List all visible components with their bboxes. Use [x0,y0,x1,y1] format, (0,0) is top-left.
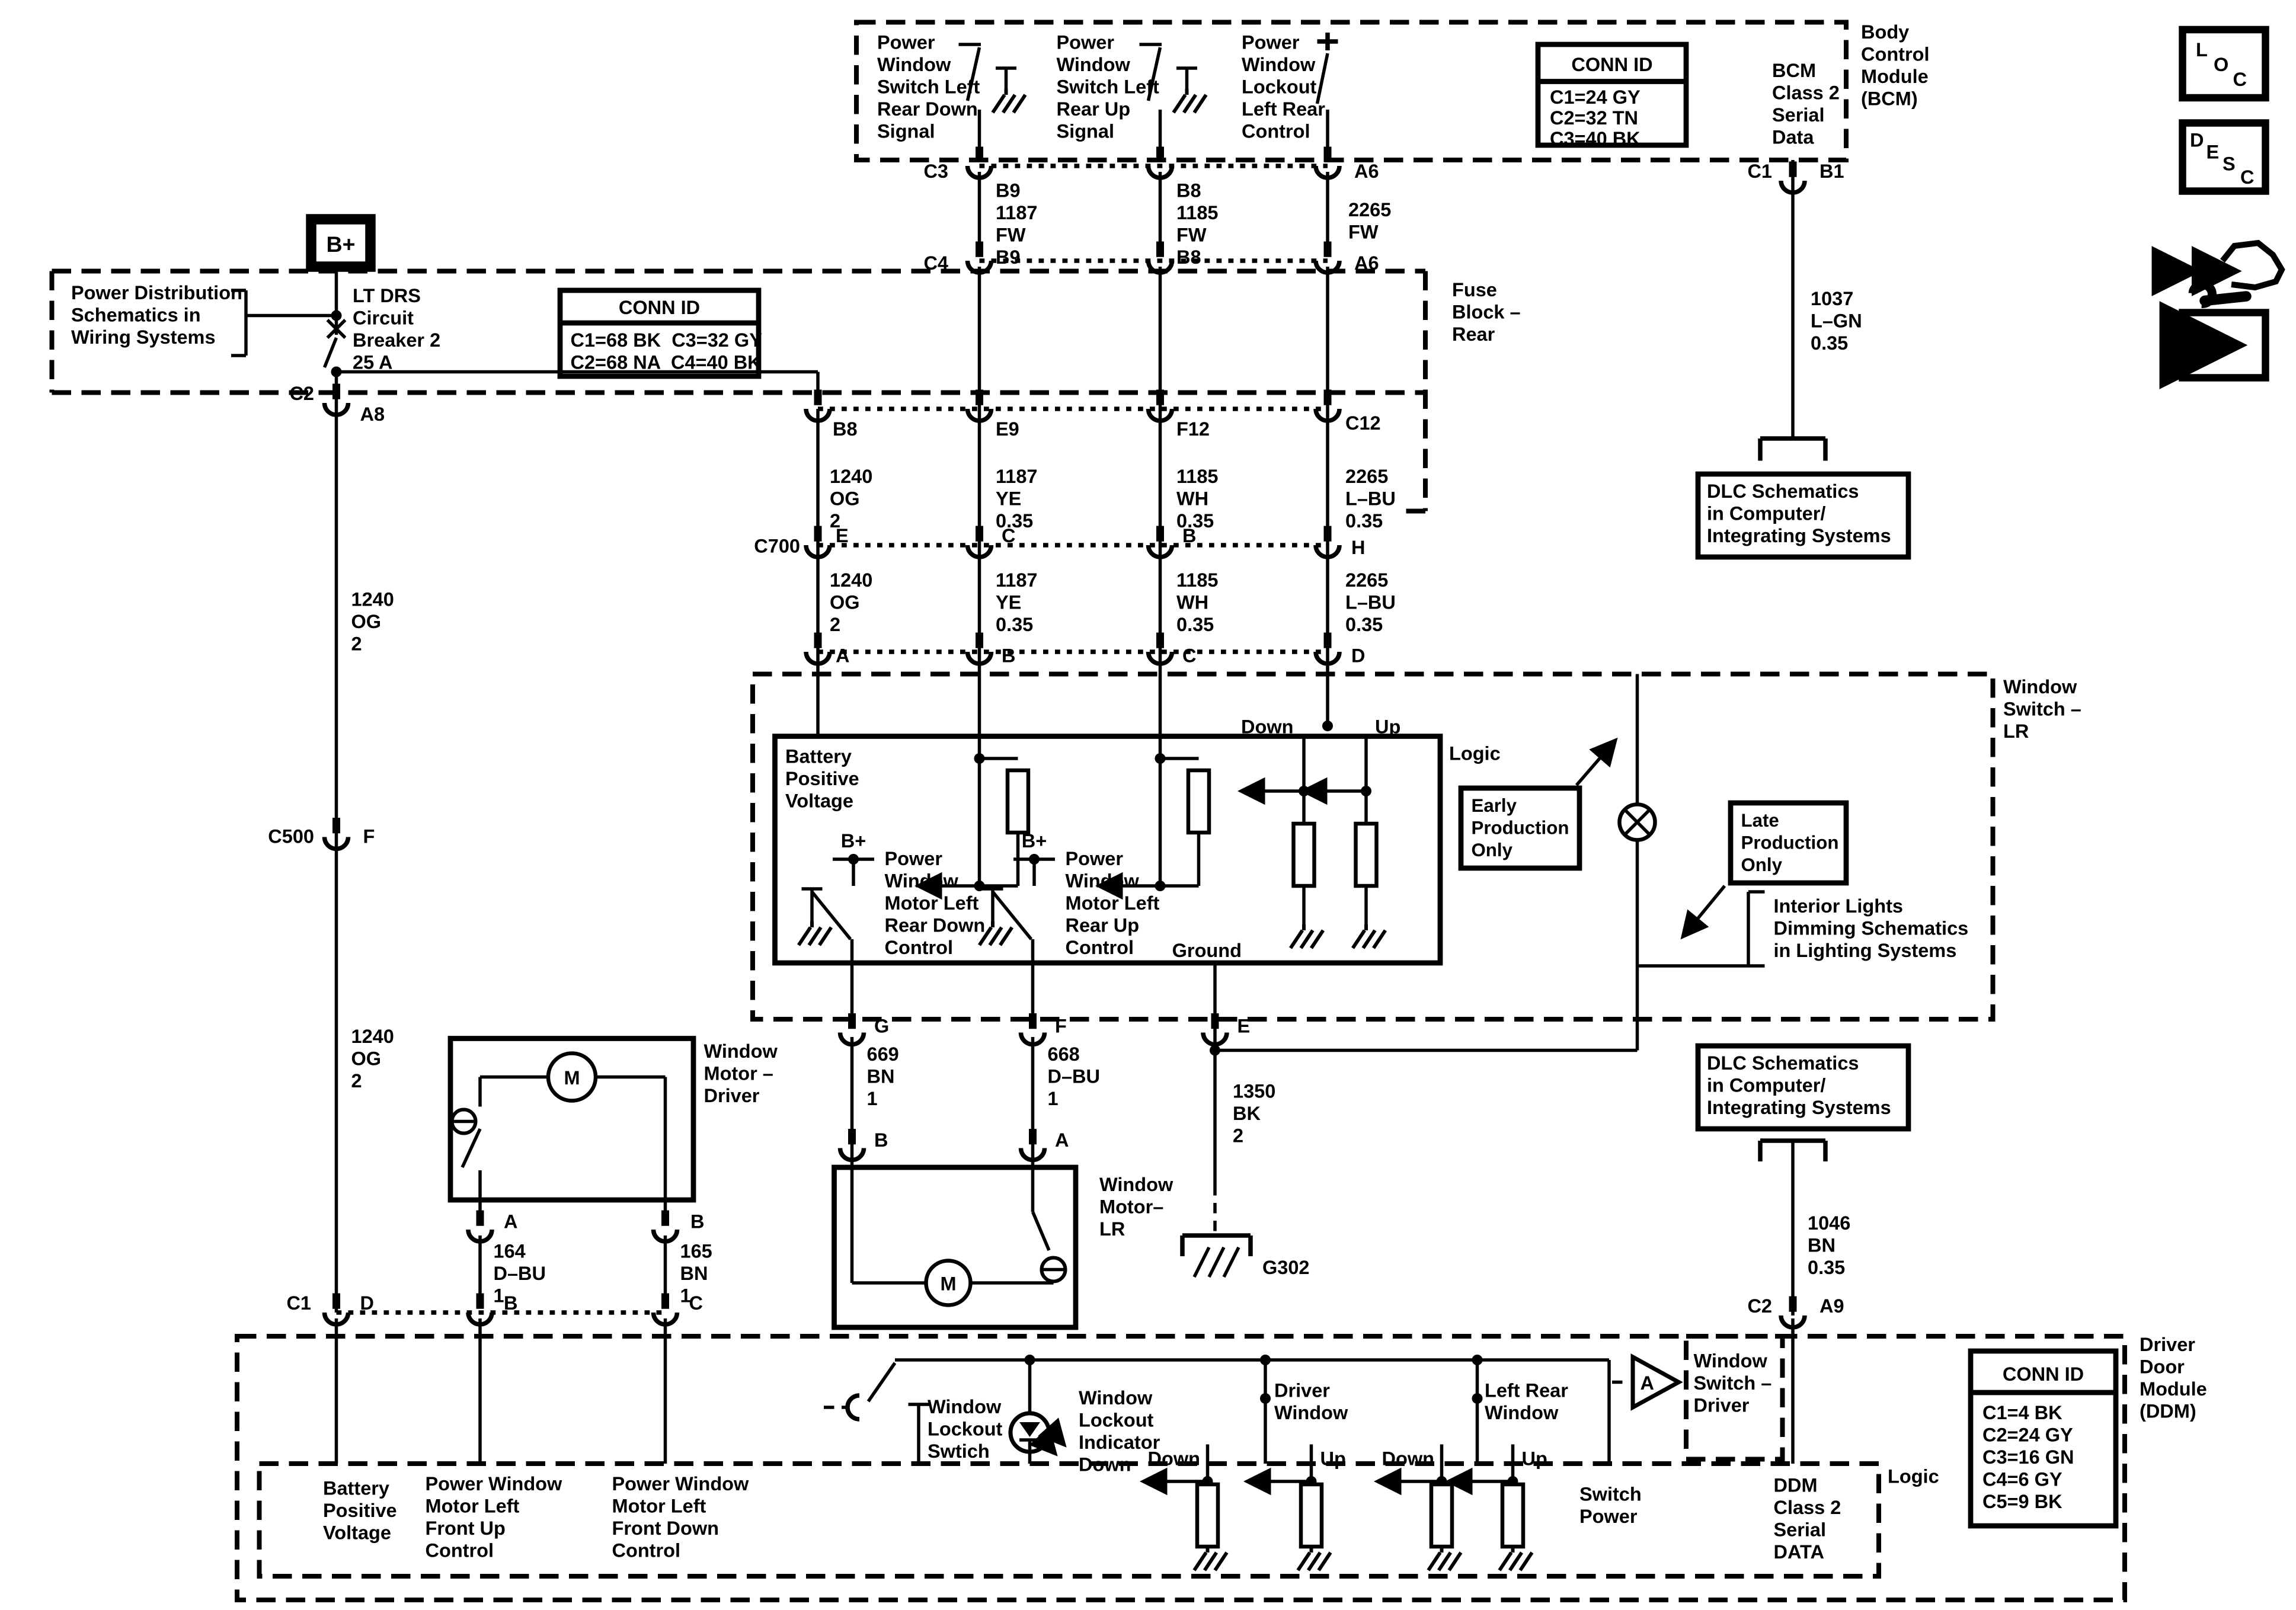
lockout-switch-icon [1318,33,1338,160]
fuse-block-rear-box: FuseBlock –Rear Power DistributionSchema… [52,267,1521,511]
up-label-1: Up [1375,716,1400,737]
motor-rear-up-control-label: PowerWindowMotor LeftRear UpControl [1066,848,1160,958]
connector-row-abcd: A B C D [806,633,1365,667]
e2-pin: E [1237,1016,1251,1037]
wire-1350-label: 1350BK2 [1233,1081,1275,1147]
up-a-label: Up [1320,1448,1346,1470]
diagnostic-tool-icon[interactable] [2193,243,2282,304]
bcm-serial-label: BCMClass 2SerialData [1772,60,1840,148]
connector-row-c3: C3 A6 [923,146,1379,182]
logic-label-2: Logic [1888,1466,1939,1487]
conn-id-fuse-title: CONN ID [619,297,700,318]
wiring-diagram: PowerWindowSwitch LeftRear DownSignal Po… [0,0,2296,1610]
switch-up-icon [1140,44,1207,160]
ddm-serial-label: DDMClass 2SerialDATA [1774,1475,1841,1563]
g302-ground: G302 [1182,1235,1310,1278]
window-motor-driver-box: M WindowMotor –Driver [450,1038,778,1224]
motor-driver-m: M [564,1067,580,1089]
front-down-control-label: Power WindowMotor LeftFront DownControl [612,1473,750,1561]
pin-a2: A [836,645,849,666]
wire-1240-a: 1240OG2 [830,466,872,532]
wire-669-label: 669BN1 [867,1044,899,1109]
g302-label: G302 [1262,1257,1310,1278]
bcm-serial-column: C1 B1 1037L–GN0.35 DLC Schematicsin Comp… [1698,160,1908,557]
late-production-label: LateProductionOnly [1741,810,1839,875]
bcm-module-label: BodyControlModule(BCM) [1861,21,1930,110]
c-bot-pin: C [689,1292,703,1314]
lockout-switch-label: PowerWindowLockoutLeft RearControl [1242,31,1325,142]
c3-label: C3 [923,161,948,182]
b-plus-label: B+ [327,232,356,257]
conn-id-ddm-rows: C1=4 BKC2=24 GYC3=16 GNC4=6 GYC5=9 BK [1982,1402,2074,1512]
wire-1185-fw-label: B81185FWB8 [1176,180,1219,268]
wire-1187-b: 1187YE0.35 [996,569,1038,635]
a-mot-pin: A [504,1211,517,1233]
wire-1046-label: 1046BN0.35 [1808,1212,1850,1278]
conn-id-bcm-title: CONN ID [1571,54,1652,75]
pin-b2: B [1002,645,1015,666]
g-pin: G [874,1016,889,1037]
wire-1037-label: 1037L–GN0.35 [1811,288,1862,354]
interior-lights-reference: Interior LightsDimming Schematicsin Ligh… [1638,892,1969,966]
wire-164-label: 164D–BU1 [494,1241,546,1307]
desc-c: C [2240,167,2254,188]
up-b-label: Up [1522,1448,1547,1470]
b3-pin: B [874,1129,888,1151]
pin-b: B [1182,525,1196,546]
window-motor-lr-box: M WindowMotor–LR [834,1167,1173,1327]
c2-label: C2 [289,383,314,404]
conn-id-bcm-box: CONN ID C1=24 GYC2=32 TNC3=40 BK [1538,44,1686,149]
d-bot-pin: D [360,1292,374,1314]
connector-c500-f: C500 F [268,818,375,849]
down-b-label: Down [1382,1448,1434,1470]
wire-1187-fw-label: B91187FWB9 [996,180,1038,268]
e9-pin: E9 [996,418,1019,440]
motor-lr-m: M [940,1273,956,1295]
driver-window-label: DriverWindow [1274,1380,1348,1424]
battery-positive-label-2: BatteryPositiveVoltage [323,1478,397,1544]
c1-bcm-label: C1 [1747,161,1772,182]
wire-668-label: 668D–BU1 [1048,1044,1101,1109]
loc-c: C [2233,69,2247,90]
connector-row-driver-ab: A B [468,1210,704,1241]
desc-button[interactable]: D E S C [2183,123,2266,191]
c1-bot-label: C1 [286,1292,311,1314]
loc-button[interactable]: L O C [2183,30,2266,98]
pin-c2: C [1182,645,1196,666]
wire-1240-left-lower: 1240OG2 [351,1026,394,1092]
window-motor-driver-label: WindowMotor –Driver [704,1041,778,1106]
c700-label: C700 [754,535,800,556]
pin-d2: D [1351,645,1365,666]
window-switch-driver: A WindowSwitch –Driver [1612,1336,1783,1459]
c500-label: C500 [268,826,314,847]
dlc-schematics-box-bottom: DLC Schematicsin Computer/Integrating Sy… [1698,1046,1908,1129]
switch-harness-box: PowerWindowSwitch LeftRear DownSignal Po… [856,23,1846,161]
c2-ddm-label: C2 [1747,1295,1772,1317]
logic-label-1: Logic [1449,742,1501,764]
loc-o: O [2214,54,2228,75]
dlc-bottom-label: DLC Schematicsin Computer/Integrating Sy… [1707,1052,1891,1118]
window-switch-lr-label: WindowSwitch –LR [2003,676,2081,742]
wire-1185-b: 1185WH0.35 [1176,569,1219,635]
b-bot-pin: B [504,1292,517,1314]
conn-id-fuse-box: CONN ID C1=68 BK C3=32 GYC2=68 NA C4=40 … [560,290,762,376]
wire-1240-left-upper: 1240OG2 [351,588,394,654]
window-switch-lr-box: BatteryPositiveVoltage Logic Down Up [753,674,1993,1051]
desc-e: E [2207,142,2220,163]
switch-left-rear-up-label: PowerWindowSwitch LeftRear UpSignal [1057,31,1160,142]
down-a-label: Down [1148,1448,1200,1470]
c12-pin: C12 [1345,412,1381,434]
a6-top-label: A6 [1354,161,1379,182]
window-lockout-switch: WindowLockoutSwtich [824,1363,1003,1464]
battery-positive-label: BatteryPositiveVoltage [785,745,859,811]
window-lockout-switch-label: WindowLockoutSwtich [928,1396,1003,1462]
conn-id-ddm-title: CONN ID [2003,1363,2084,1385]
wire-1187-m: 1187YE0.35 [996,466,1038,532]
a8-label: A8 [360,404,385,425]
switch-left-rear-down-label: PowerWindowSwitch LeftRear DownSignal [877,31,980,142]
b8-pin: B8 [833,418,858,440]
backlight-lamp-icon [1620,674,1655,1051]
wire-1240-b: 1240OG2 [830,569,872,635]
ground-label: Ground [1172,940,1242,961]
ddm-label: DriverDoorModule(DDM) [2140,1334,2207,1422]
dlc-top-label: DLC Schematicsin Computer/Integrating Sy… [1707,481,1891,546]
conn-id-fuse-rows: C1=68 BK C3=32 GYC2=68 NA C4=40 BK [571,329,763,373]
interior-lights-label: Interior LightsDimming Schematicsin Ligh… [1774,895,1969,961]
connector-row-c700: C700 E C B H [754,525,1365,558]
b1-label: B1 [1819,161,1844,182]
lockout-indicator-led: WindowLockoutIndicatorDown [1011,1360,1160,1475]
motor-rear-down-control-label: PowerWindowMotor LeftRear DownControl [885,848,986,958]
next-page-button[interactable] [2183,313,2266,378]
wire-2265-m: 2265L–BU0.35 [1345,466,1396,532]
f12-pin: F12 [1176,418,1210,440]
switch-power-label: SwitchPower [1579,1484,1642,1528]
fuse-block-label: FuseBlock –Rear [1452,279,1521,345]
left-rear-window-label: Left RearWindow [1485,1380,1568,1424]
window-switch-driver-label: WindowSwitch –Driver [1694,1350,1772,1416]
conn-id-bcm-rows: C1=24 GYC2=32 TNC3=40 BK [1550,87,1641,149]
triangle-a-label: A [1641,1372,1654,1394]
desc-s: S [2223,153,2236,175]
loc-l: L [2196,39,2208,60]
f-pin-label: F [363,826,375,847]
power-distribution-label: Power DistributionSchematics inWiring Sy… [71,282,242,348]
circuit-breaker-label: LT DRSCircuitBreaker 225 A [353,285,440,373]
connector-row-ba: B A [840,1129,1069,1160]
connector-row-fuse-out: B8 E9 F12 C12 [806,390,1381,440]
front-up-control-label: Power WindowMotor LeftFront UpControl [426,1473,563,1561]
window-motor-lr-label: WindowMotor–LR [1099,1174,1173,1240]
wire-2265-b: 2265L–BU0.35 [1345,569,1396,635]
f2-pin: F [1055,1016,1067,1037]
wire-1185-m: 1185WH0.35 [1176,466,1219,532]
a9-label: A9 [1819,1295,1844,1317]
logic-resistor-down [1242,737,1323,948]
conn-id-ddm-box: CONN ID C1=4 BKC2=24 GYC3=16 GNC4=6 GYC5… [1971,1351,2116,1526]
pin-c: C [1002,525,1015,546]
b-mot-pin: B [690,1211,704,1233]
down-label-1: Down [1241,716,1293,737]
pin-e: E [836,525,849,546]
desc-d: D [2190,130,2204,151]
early-production-label: EarlyProductionOnly [1472,795,1569,860]
wire-2265-fw-label: 2265FW [1348,199,1391,243]
ddm-box: Logic WindowLockoutSwtich WindowLockoutI… [237,1336,2125,1600]
wiring-diagram-page: PowerWindowSwitch LeftRear DownSignal Po… [0,0,2296,1610]
pin-h: H [1351,537,1365,558]
b-plus-terminal: B+ [311,219,370,267]
a3-pin: A [1055,1129,1069,1151]
bplus-sw1-label: B+ [841,830,866,852]
dlc-schematics-box-top: DLC Schematicsin Computer/Integrating Sy… [1698,474,1908,557]
bplus-sw2-label: B+ [1022,830,1047,852]
